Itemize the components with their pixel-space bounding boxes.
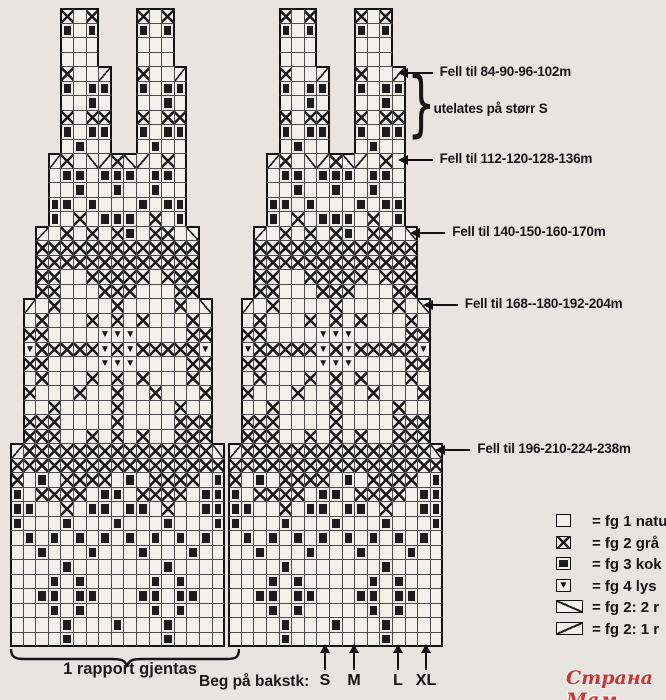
chart-cell-e xyxy=(73,66,87,82)
chart-cell-e xyxy=(367,23,381,39)
chart-cell-f xyxy=(354,545,368,561)
chart-cell-e xyxy=(241,588,255,604)
chart-cell-e xyxy=(367,617,381,633)
chart-cell-e xyxy=(279,414,293,430)
chart-cell-x xyxy=(149,255,163,271)
chart-cell-f xyxy=(186,545,200,561)
chart-cell-x xyxy=(48,284,62,300)
chart-cell-x xyxy=(186,356,200,372)
chart-cell-e xyxy=(354,617,368,633)
chart-cell-e xyxy=(342,617,356,633)
chart-cell-e xyxy=(367,95,381,111)
chart-cell-f xyxy=(48,197,62,213)
chart-cell-e xyxy=(86,414,100,430)
chart-cell-f xyxy=(174,530,188,546)
chart-cell-x xyxy=(60,443,74,459)
chart-cell-f xyxy=(304,124,318,140)
chart-cell-e xyxy=(342,603,356,619)
chart-cell-f xyxy=(241,530,255,546)
chart-cell-e xyxy=(291,37,305,53)
chart-cell-e xyxy=(73,356,87,372)
chart-cell-e xyxy=(316,617,330,633)
chart-cell-e xyxy=(199,603,213,619)
chart-cell-e xyxy=(174,385,188,401)
chart-cell-e xyxy=(111,472,125,488)
chart-cell-x xyxy=(186,371,200,387)
chart-cell-e xyxy=(354,95,368,111)
chart-cell-e xyxy=(98,371,112,387)
chart-cell-e xyxy=(279,95,293,111)
chart-cell-f xyxy=(48,588,62,604)
chart-cell-e xyxy=(73,37,87,53)
chart-cell-e xyxy=(291,545,305,561)
chart-cell-e xyxy=(161,429,175,445)
chart-cell-x xyxy=(35,255,49,271)
chart-cell-e xyxy=(149,124,163,140)
chart-cell-x xyxy=(111,298,125,314)
chart-cell-e xyxy=(367,356,381,372)
chart-cell-e xyxy=(10,617,24,633)
chart-cell-x xyxy=(174,458,188,474)
chart-cell-x xyxy=(291,255,305,271)
chart-cell-x xyxy=(186,458,200,474)
chart-cell-e xyxy=(161,66,175,82)
chart-cell-e xyxy=(86,284,100,300)
chart-cell-e xyxy=(367,197,381,213)
chart-cell-x xyxy=(186,327,200,343)
chart-cell-x xyxy=(48,255,62,271)
chart-cell-x xyxy=(329,414,343,430)
size-label-m: M xyxy=(341,672,367,690)
chart-cell-x xyxy=(392,472,406,488)
chart-cell-e xyxy=(392,617,406,633)
chart-cell-f xyxy=(60,23,74,39)
chart-cell-e xyxy=(98,197,112,213)
chart-cell-e xyxy=(123,400,137,416)
chart-cell-e xyxy=(316,139,330,155)
chart-cell-x xyxy=(48,269,62,285)
chart-cell-f xyxy=(60,632,74,648)
chart-cell-x xyxy=(329,371,343,387)
chart-cell-f xyxy=(199,530,213,546)
chart-cell-e xyxy=(161,298,175,314)
chart-cell-x xyxy=(430,458,444,474)
chart-cell-e xyxy=(98,298,112,314)
chart-cell-x xyxy=(86,429,100,445)
chart-cell-x xyxy=(367,342,381,358)
chart-cell-e xyxy=(316,400,330,416)
chart-cell-x xyxy=(379,153,393,169)
chart-cell-e xyxy=(279,269,293,285)
chart-cell-e xyxy=(291,617,305,633)
chart-cell-x xyxy=(60,472,74,488)
chart-cell-e xyxy=(291,559,305,575)
chart-cell-e xyxy=(86,211,100,227)
chart-cell-x xyxy=(266,298,280,314)
chart-cell-e xyxy=(291,516,305,532)
chart-cell-f xyxy=(86,23,100,39)
chart-cell-e xyxy=(304,327,318,343)
chart-cell-e xyxy=(291,197,305,213)
chart-cell-f xyxy=(253,472,267,488)
chart-cell-x xyxy=(199,414,213,430)
chart-cell-x xyxy=(405,342,419,358)
chart-cell-e xyxy=(417,588,431,604)
chart-cell-x xyxy=(405,327,419,343)
chart-cell-f xyxy=(430,472,444,488)
chart-cell-e xyxy=(367,110,381,126)
chart-cell-f xyxy=(174,603,188,619)
chart-cell-e xyxy=(35,559,49,575)
chart-cell-e xyxy=(199,516,213,532)
chart-cell-f xyxy=(86,545,100,561)
chart-cell-x xyxy=(367,255,381,271)
chart-cell-e xyxy=(241,574,255,590)
chart-cell-e xyxy=(73,95,87,111)
chart-cell-e xyxy=(73,545,87,561)
chart-cell-x xyxy=(405,472,419,488)
chart-cell-x xyxy=(316,458,330,474)
chart-cell-x xyxy=(86,458,100,474)
chart-cell-f xyxy=(60,124,74,140)
chart-cell-d1 xyxy=(342,153,356,169)
chart-cell-x xyxy=(392,487,406,503)
chart-cell-e xyxy=(304,139,318,155)
chart-cell-x xyxy=(304,458,318,474)
chart-cell-e xyxy=(86,327,100,343)
chart-cell-f xyxy=(241,501,255,517)
chart-cell-f xyxy=(392,603,406,619)
chart-cell-e xyxy=(60,37,74,53)
chart-cell-x xyxy=(161,8,175,24)
chart-cell-f xyxy=(430,516,444,532)
chart-cell-x xyxy=(111,284,125,300)
chart-cell-e xyxy=(304,487,318,503)
chart-cell-x xyxy=(329,269,343,285)
chart-cell-e xyxy=(149,95,163,111)
chart-cell-x xyxy=(405,269,419,285)
chart-cell-e xyxy=(73,8,87,24)
chart-cell-x xyxy=(161,269,175,285)
chart-cell-f xyxy=(379,197,393,213)
chart-cell-e xyxy=(392,356,406,372)
chart-cell-e xyxy=(316,574,330,590)
chart-cell-v: ▼ xyxy=(98,356,112,372)
chart-cell-x xyxy=(149,487,163,503)
chart-cell-f xyxy=(304,501,318,517)
chart-cell-x xyxy=(316,240,330,256)
chart-cell-f xyxy=(136,197,150,213)
chart-cell-e xyxy=(316,371,330,387)
chart-cell-e xyxy=(291,226,305,242)
chart-cell-e xyxy=(430,530,444,546)
chart-cell-e xyxy=(367,284,381,300)
chart-cell-x xyxy=(405,356,419,372)
chart-cell-d1 xyxy=(123,153,137,169)
chart-cell-x xyxy=(98,284,112,300)
chart-cell-f xyxy=(161,617,175,633)
chart-cell-x xyxy=(174,472,188,488)
chart-cell-e xyxy=(60,52,74,68)
chart-cell-e xyxy=(253,632,267,648)
chart-cell-x xyxy=(111,226,125,242)
chart-cell-e xyxy=(316,298,330,314)
chart-cell-x xyxy=(329,400,343,416)
chart-cell-x xyxy=(405,284,419,300)
chart-cell-x xyxy=(174,240,188,256)
chart-cell-e xyxy=(123,588,137,604)
chart-cell-x xyxy=(392,284,406,300)
chart-cell-e xyxy=(23,487,37,503)
chart-cell-x xyxy=(329,342,343,358)
chart-cell-x xyxy=(149,472,163,488)
chart-cell-e xyxy=(354,37,368,53)
chart-cell-x xyxy=(241,429,255,445)
chart-cell-e xyxy=(316,197,330,213)
chart-cell-e xyxy=(329,588,343,604)
chart-cell-e xyxy=(379,313,393,329)
chart-cell-x xyxy=(199,458,213,474)
chart-cell-e xyxy=(392,516,406,532)
chart-cell-e xyxy=(60,298,74,314)
chart-cell-f xyxy=(35,545,49,561)
chart-cell-f xyxy=(417,530,431,546)
chart-cell-e xyxy=(241,371,255,387)
chart-cell-f xyxy=(48,574,62,590)
chart-cell-x xyxy=(304,472,318,488)
chart-cell-e xyxy=(161,182,175,198)
chart-cell-e xyxy=(304,284,318,300)
chart-cell-f xyxy=(98,501,112,517)
chart-cell-x xyxy=(329,153,343,169)
chart-cell-e xyxy=(136,356,150,372)
chart-cell-e xyxy=(86,356,100,372)
chart-cell-e xyxy=(73,559,87,575)
chart-cell-x xyxy=(23,385,37,401)
chart-cell-e xyxy=(149,559,163,575)
chart-cell-x xyxy=(86,342,100,358)
chart-cell-f xyxy=(291,182,305,198)
chart-cell-x xyxy=(86,269,100,285)
chart-cell-x xyxy=(174,255,188,271)
chart-cell-e xyxy=(35,298,49,314)
chart-cell-e xyxy=(367,400,381,416)
chart-cell-x xyxy=(123,458,137,474)
chart-cell-e xyxy=(304,400,318,416)
chart-cell-f xyxy=(212,472,226,488)
chart-cell-e xyxy=(73,81,87,97)
chart-cell-x xyxy=(35,284,49,300)
chart-cell-e xyxy=(73,197,87,213)
chart-cell-f xyxy=(174,197,188,213)
chart-cell-e xyxy=(73,284,87,300)
chart-cell-x xyxy=(329,284,343,300)
chart-cell-x xyxy=(241,356,255,372)
chart-cell-x xyxy=(392,414,406,430)
chart-cell-e xyxy=(98,632,112,648)
chart-cell-f xyxy=(304,545,318,561)
chart-cell-f xyxy=(279,81,293,97)
chart-cell-e xyxy=(136,95,150,111)
chart-cell-x xyxy=(35,458,49,474)
chart-cell-x xyxy=(149,211,163,227)
chart-cell-x xyxy=(48,487,62,503)
chart-cell-e xyxy=(367,429,381,445)
chart-cell-e xyxy=(161,52,175,68)
chart-cell-f xyxy=(98,81,112,97)
chart-cell-e xyxy=(266,327,280,343)
chart-cell-x xyxy=(329,385,343,401)
chart-cell-e xyxy=(430,588,444,604)
chart-cell-f xyxy=(266,588,280,604)
chart-cell-x xyxy=(266,284,280,300)
chart-cell-x xyxy=(35,429,49,445)
chart-cell-f xyxy=(367,168,381,184)
chart-cell-f xyxy=(304,95,318,111)
chart-cell-v: ▼ xyxy=(123,342,137,358)
chart-cell-e xyxy=(291,124,305,140)
chart-cell-e xyxy=(379,371,393,387)
omit-rows-brace-icon: } xyxy=(407,75,436,133)
chart-cell-e xyxy=(161,603,175,619)
watermark: Страна Мам xyxy=(566,667,666,700)
chart-cell-e xyxy=(123,603,137,619)
chart-cell-x xyxy=(199,429,213,445)
chart-cell-e xyxy=(379,66,393,82)
chart-cell-x xyxy=(304,342,318,358)
chart-cell-e xyxy=(86,574,100,590)
chart-cell-e xyxy=(266,501,280,517)
chart-cell-e xyxy=(149,632,163,648)
chart-cell-e xyxy=(123,429,137,445)
chart-cell-f xyxy=(174,211,188,227)
chart-cell-x xyxy=(266,443,280,459)
chart-cell-f xyxy=(161,168,175,184)
chart-cell-x xyxy=(174,298,188,314)
legend-label: = fg 2 grå xyxy=(592,535,659,552)
chart-cell-e xyxy=(10,530,24,546)
chart-cell-x xyxy=(23,327,37,343)
chart-cell-x xyxy=(279,226,293,242)
chart-cell-e xyxy=(291,327,305,343)
chart-cell-x xyxy=(253,429,267,445)
chart-cell-e xyxy=(98,559,112,575)
chart-cell-e xyxy=(86,559,100,575)
chart-cell-x xyxy=(73,211,87,227)
decrease-label: Fell til 196-210-224-238m xyxy=(477,441,630,456)
chart-cell-e xyxy=(149,327,163,343)
chart-cell-e xyxy=(316,545,330,561)
chart-cell-e xyxy=(417,516,431,532)
chart-cell-f xyxy=(161,95,175,111)
chart-cell-e xyxy=(266,226,280,242)
chart-cell-e xyxy=(174,632,188,648)
chart-cell-x xyxy=(35,342,49,358)
chart-cell-e xyxy=(316,588,330,604)
chart-cell-x xyxy=(304,255,318,271)
chart-cell-x xyxy=(35,327,49,343)
chart-cell-e xyxy=(111,588,125,604)
chart-cell-v: ▼ xyxy=(98,327,112,343)
chart-cell-x xyxy=(136,458,150,474)
chart-cell-f xyxy=(136,501,150,517)
chart-cell-e xyxy=(253,530,267,546)
chart-cell-e xyxy=(291,414,305,430)
chart-cell-e xyxy=(174,95,188,111)
chart-cell-f xyxy=(60,516,74,532)
chart-cell-e xyxy=(48,501,62,517)
chart-cell-x xyxy=(161,110,175,126)
chart-cell-x xyxy=(73,385,87,401)
chart-cell-f xyxy=(266,574,280,590)
chart-cell-e xyxy=(149,501,163,517)
chart-cell-e xyxy=(48,168,62,184)
chart-cell-x xyxy=(161,501,175,517)
chart-cell-e xyxy=(354,284,368,300)
chart-cell-e xyxy=(136,284,150,300)
chart-cell-x xyxy=(279,110,293,126)
chart-cell-e xyxy=(174,371,188,387)
chart-cell-e xyxy=(367,501,381,517)
chart-cell-x xyxy=(174,487,188,503)
chart-cell-d2 xyxy=(10,443,24,459)
chart-cell-f xyxy=(316,81,330,97)
chart-cell-e xyxy=(149,23,163,39)
chart-cell-e xyxy=(161,313,175,329)
chart-cell-x xyxy=(10,472,24,488)
chart-cell-e xyxy=(354,168,368,184)
chart-cell-e xyxy=(10,559,24,575)
chart-cell-x xyxy=(405,458,419,474)
chart-cell-x xyxy=(60,66,74,82)
chart-cell-x xyxy=(329,226,343,242)
chart-cell-v: ▼ xyxy=(111,356,125,372)
chart-cell-f xyxy=(149,530,163,546)
chart-cell-e xyxy=(392,559,406,575)
chart-cell-f xyxy=(10,501,24,517)
chart-cell-v: ▼ xyxy=(342,342,356,358)
chart-cell-e xyxy=(60,356,74,372)
chart-cell-e xyxy=(279,603,293,619)
chart-cell-e xyxy=(149,414,163,430)
chart-cell-e xyxy=(367,81,381,97)
chart-cell-e xyxy=(199,313,213,329)
chart-cell-e xyxy=(98,588,112,604)
chart-cell-e xyxy=(266,559,280,575)
chart-cell-e xyxy=(342,400,356,416)
chart-cell-e xyxy=(123,516,137,532)
chart-cell-e xyxy=(86,139,100,155)
chart-cell-x xyxy=(23,429,37,445)
chart-cell-x xyxy=(253,240,267,256)
chart-cell-e xyxy=(241,603,255,619)
chart-cell-e xyxy=(60,284,74,300)
chart-cell-e xyxy=(98,429,112,445)
chart-cell-f xyxy=(136,81,150,97)
chart-cell-x xyxy=(253,255,267,271)
chart-cell-e xyxy=(291,356,305,372)
chart-cell-x xyxy=(111,443,125,459)
chart-cell-e xyxy=(98,226,112,242)
chart-cell-e xyxy=(392,95,406,111)
chart-cell-f xyxy=(23,501,37,517)
chart-cell-x xyxy=(266,458,280,474)
chart-cell-x xyxy=(241,443,255,459)
chart-cell-e xyxy=(73,226,87,242)
chart-cell-e xyxy=(186,487,200,503)
chart-cell-f xyxy=(174,81,188,97)
chart-cell-f xyxy=(174,588,188,604)
